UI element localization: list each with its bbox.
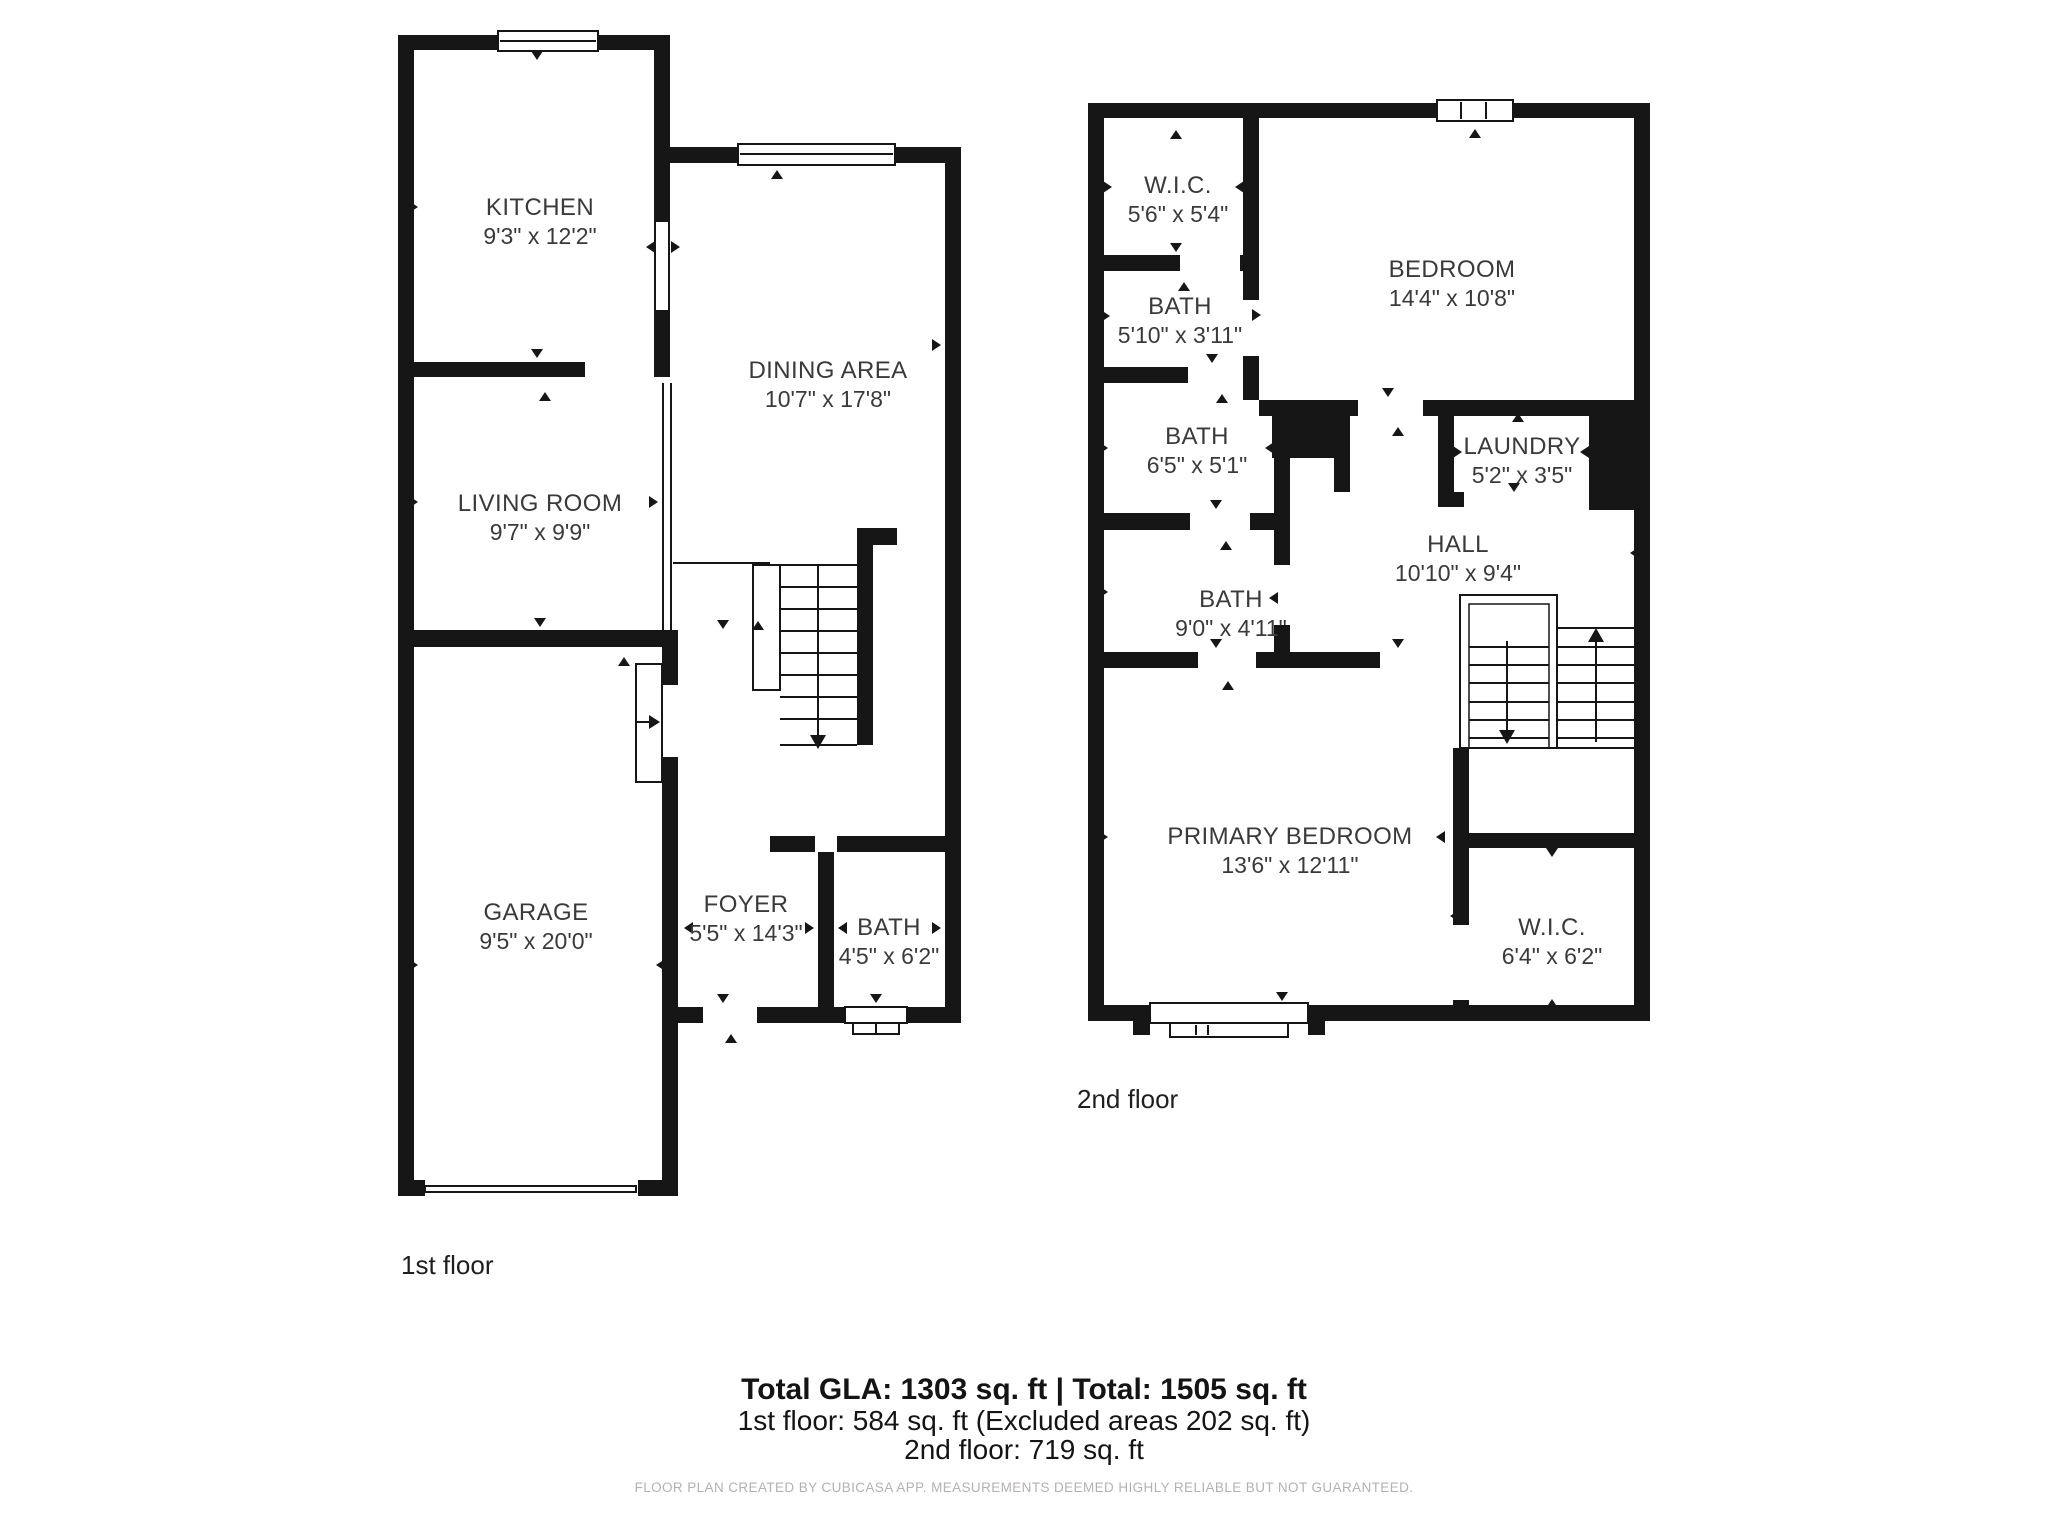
tick-icon bbox=[1170, 130, 1182, 139]
tick-icon bbox=[1265, 442, 1274, 454]
cubicasa-disclaimer-text: FLOOR PLAN CREATED BY CUBICASA APP. MEAS… bbox=[0, 1480, 2048, 1495]
tick-icon bbox=[1178, 282, 1190, 291]
floor-plan-drawing bbox=[0, 0, 2048, 1536]
tick-icon bbox=[618, 657, 630, 666]
tick-icon bbox=[1103, 181, 1112, 193]
tick-icon bbox=[1588, 628, 1604, 642]
room-label-garage: GARAGE 9'5" x 20'0" bbox=[479, 898, 592, 956]
room-label-bath-65: BATH 6'5" x 5'1" bbox=[1147, 422, 1248, 480]
tick-icon bbox=[717, 994, 729, 1003]
tick-icon bbox=[717, 620, 729, 629]
area-summary: Total GLA: 1303 sq. ft | Total: 1505 sq.… bbox=[0, 1374, 2048, 1495]
tick-icon bbox=[771, 170, 783, 179]
tick-icon bbox=[1580, 446, 1589, 458]
floor-plan-page: KITCHEN 9'3" x 12'2" DINING AREA 10'7" x… bbox=[0, 0, 2048, 1536]
room-label-hall: HALL 10'10" x 9'4" bbox=[1395, 530, 1521, 588]
tick-icon bbox=[1392, 427, 1404, 436]
floor-caption-first: 1st floor bbox=[401, 1250, 494, 1281]
tick-icon bbox=[1436, 831, 1445, 843]
tick-icon bbox=[1210, 500, 1222, 509]
tick-icon bbox=[1222, 681, 1234, 690]
total-gla-text: Total GLA: 1303 sq. ft | Total: 1505 sq.… bbox=[0, 1374, 2048, 1405]
tick-icon bbox=[1469, 129, 1481, 138]
tick-icon bbox=[539, 392, 551, 401]
tick-icon bbox=[1216, 394, 1228, 403]
room-label-primary-bedroom: PRIMARY BEDROOM 13'6" x 12'11" bbox=[1167, 822, 1412, 880]
tick-icon bbox=[646, 241, 655, 253]
room-label-foyer: FOYER 5'5" x 14'3" bbox=[689, 890, 802, 948]
tick-icon bbox=[1252, 309, 1261, 321]
tick-icon bbox=[810, 735, 826, 749]
tick-icon bbox=[1382, 388, 1394, 397]
tick-icon bbox=[1392, 639, 1404, 648]
room-label-laundry: LAUNDRY 5'2" x 3'5" bbox=[1463, 432, 1580, 490]
tick-icon bbox=[870, 994, 882, 1003]
room-label-bedroom: BEDROOM 14'4" x 10'8" bbox=[1389, 255, 1516, 313]
tick-icon bbox=[805, 922, 814, 934]
tick-icon bbox=[531, 349, 543, 358]
room-label-kitchen: KITCHEN 9'3" x 12'2" bbox=[483, 193, 596, 251]
tick-icon bbox=[1546, 999, 1558, 1008]
tick-icon bbox=[1220, 541, 1232, 550]
room-label-bath-90: BATH 9'0" x 4'11" bbox=[1175, 585, 1287, 643]
tick-icon bbox=[1101, 310, 1110, 322]
room-label-bath-510: BATH 5'10" x 3'11" bbox=[1118, 292, 1242, 350]
tick-icon bbox=[1276, 992, 1288, 1001]
tick-icon bbox=[1546, 848, 1558, 857]
second-floor-area-text: 2nd floor: 719 sq. ft bbox=[0, 1435, 2048, 1464]
tick-icon bbox=[1453, 446, 1462, 458]
floor-caption-second: 2nd floor bbox=[1077, 1084, 1178, 1115]
tick-icon bbox=[656, 959, 665, 971]
tick-icon bbox=[649, 496, 658, 508]
tick-icon bbox=[1206, 354, 1218, 363]
room-label-wic-large: W.I.C. 6'4" x 6'2" bbox=[1502, 913, 1603, 971]
tick-icon bbox=[932, 339, 941, 351]
tick-icon bbox=[531, 51, 543, 60]
tick-icon bbox=[1170, 243, 1182, 252]
tick-icon bbox=[671, 241, 680, 253]
second-floor-walls bbox=[1088, 103, 1650, 1035]
tick-icon bbox=[725, 1034, 737, 1043]
tick-icon bbox=[1235, 181, 1244, 193]
room-label-wic-small: W.I.C. 5'6" x 5'4" bbox=[1128, 171, 1229, 229]
room-label-bath-first: BATH 4'5" x 6'2" bbox=[839, 913, 940, 971]
room-label-living-room: LIVING ROOM 9'7" x 9'9" bbox=[458, 489, 622, 547]
room-label-dining-area: DINING AREA 10'7" x 17'8" bbox=[748, 356, 907, 414]
tick-icon bbox=[534, 618, 546, 627]
first-floor-area-text: 1st floor: 584 sq. ft (Excluded areas 20… bbox=[0, 1406, 2048, 1435]
